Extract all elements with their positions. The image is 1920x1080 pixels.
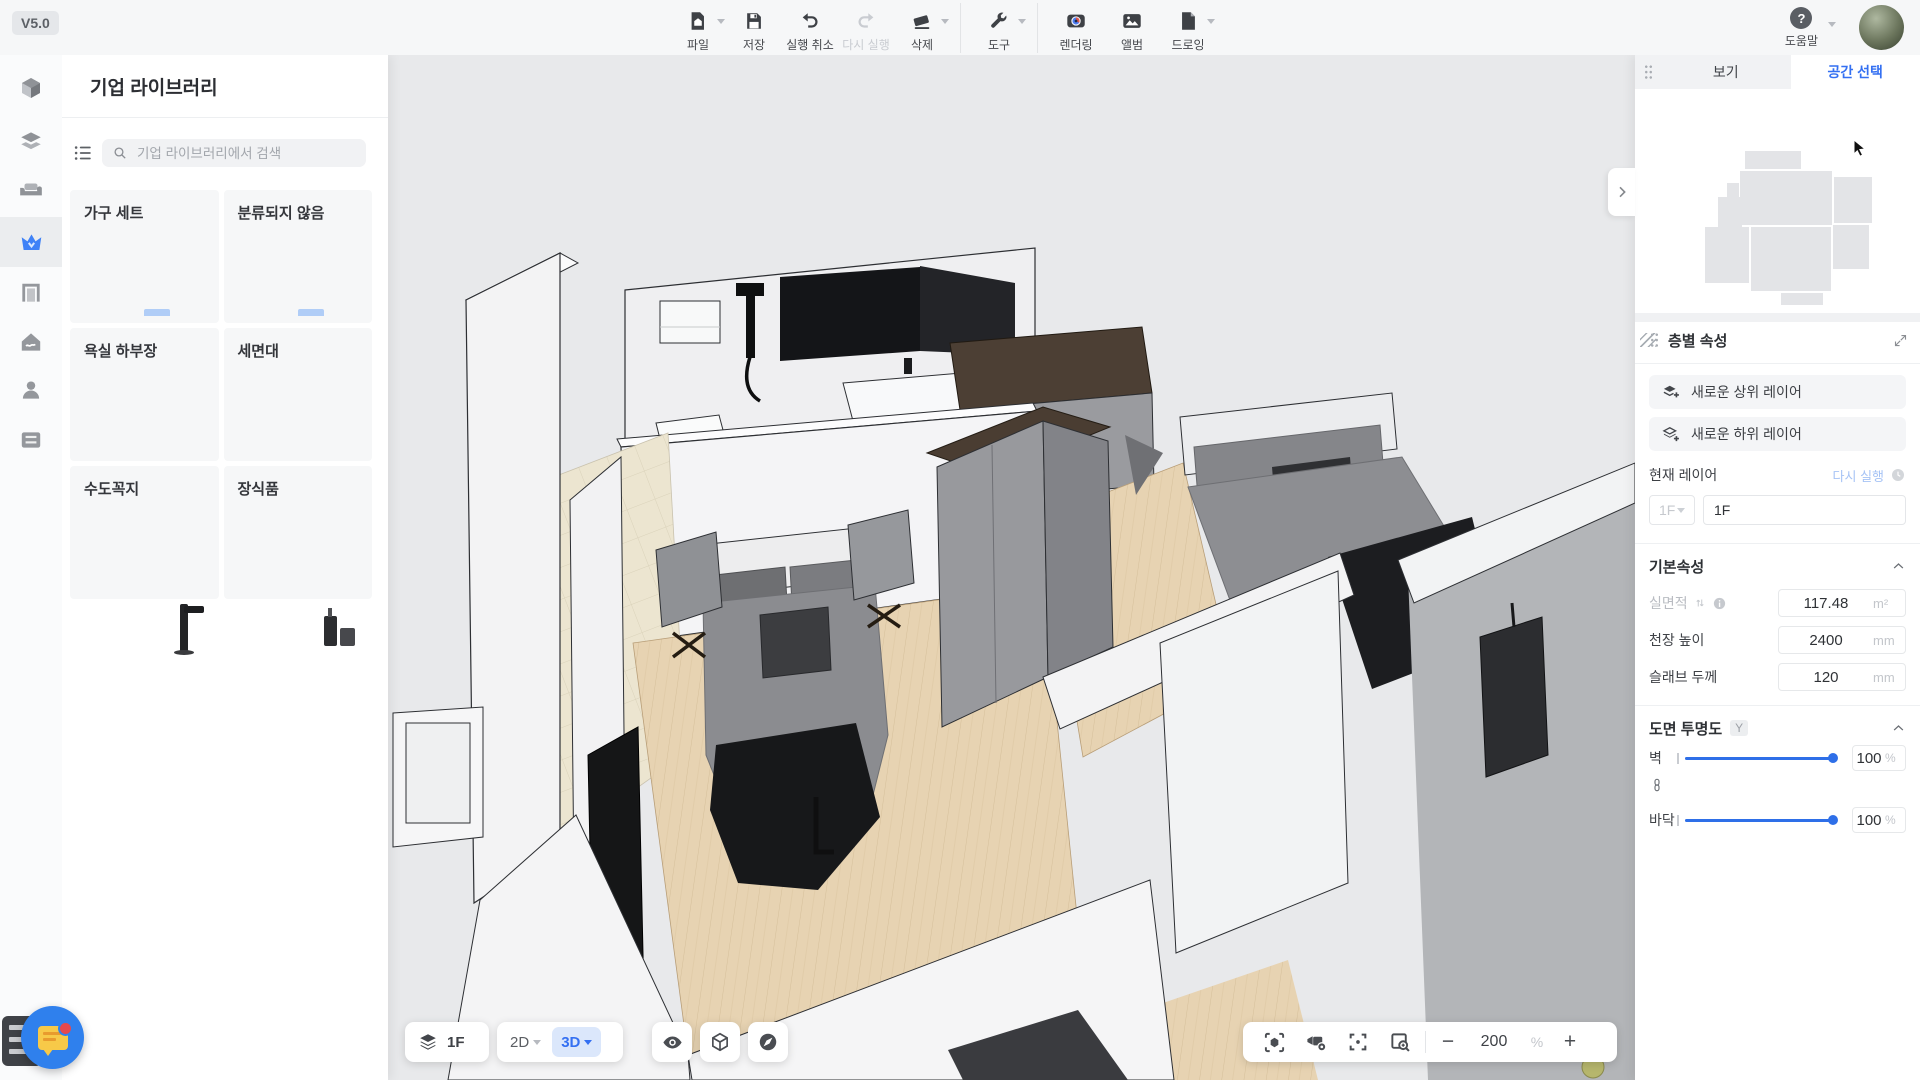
chevron-down-icon	[533, 1040, 541, 1045]
crown-icon	[18, 229, 45, 256]
camera-frame-icon	[1263, 1031, 1286, 1054]
category-grid: 가구 세트 분류되지 않음 욕실 하부장 세면대 수도꼭지 장식품	[70, 190, 372, 599]
ceiling-height-input[interactable]: 2400 mm	[1778, 626, 1906, 654]
area-value: 117.48	[1779, 595, 1873, 612]
tab-view[interactable]: 보기	[1661, 55, 1791, 89]
right-panel: 보기 공간 선택 층별 속성 새로운	[1635, 55, 1920, 1080]
zoom-area-button[interactable]	[1379, 1031, 1421, 1054]
save-label: 저장	[743, 36, 765, 53]
swap-icon[interactable]	[1693, 596, 1707, 610]
search-icon	[112, 145, 128, 161]
floorplan-minimap[interactable]	[1635, 89, 1920, 313]
sidebar-item-enterprise-library[interactable]	[0, 217, 62, 267]
zoom-out-button[interactable]: −	[1430, 1030, 1466, 1054]
drawer-icon	[18, 427, 44, 453]
area-label: 실면적	[1649, 593, 1688, 613]
sidebar-item-storage[interactable]	[0, 415, 62, 465]
divider	[1635, 705, 1920, 706]
new-upper-layer-label: 새로운 상위 레이어	[1691, 382, 1802, 402]
slab-thickness-label: 슬래브 두께	[1649, 667, 1717, 687]
floor-properties-title: 층별 속성	[1668, 330, 1727, 351]
mode-3d-label: 3D	[561, 1034, 580, 1051]
info-icon[interactable]	[1712, 596, 1727, 611]
compass-icon	[757, 1031, 779, 1053]
layer-add-up-icon	[1661, 382, 1681, 402]
chevron-right-icon	[1614, 184, 1630, 200]
category-card-faucet[interactable]: 수도꼭지	[70, 466, 219, 599]
drawing-button[interactable]: 드로잉	[1160, 3, 1216, 53]
floorplan-3d-scene	[388, 55, 1635, 1080]
chevron-down-icon	[717, 19, 725, 24]
sidebar-item-smart-home[interactable]	[0, 317, 62, 367]
category-name: 욕실 하부장	[84, 340, 157, 361]
library-panel: 기업 라이브러리 가구 세트 분류되지 않음 욕실 하부장 세면대 수도꼭지	[62, 55, 388, 1080]
zoom-toolbar: − 200 % +	[1243, 1022, 1617, 1062]
camera-settings-button[interactable]	[1295, 1031, 1337, 1054]
divider	[1425, 1031, 1426, 1053]
zoom-region-icon	[1389, 1031, 1412, 1054]
eraser-icon	[911, 10, 933, 32]
slab-thickness-unit: mm	[1873, 670, 1905, 685]
toolbar-group-tools: 도구	[960, 3, 1037, 53]
slab-thickness-value: 120	[1779, 669, 1873, 686]
render-label: 렌더링	[1059, 36, 1092, 53]
chevron-up-icon[interactable]	[1891, 721, 1906, 736]
basic-properties-header: 기본속성	[1649, 555, 1906, 577]
divider	[1635, 363, 1920, 364]
render-button[interactable]: 렌더링	[1048, 3, 1104, 53]
sidebar-item-account[interactable]	[0, 365, 62, 415]
divider	[1635, 313, 1920, 322]
house-icon	[18, 329, 44, 355]
category-card-decor[interactable]: 장식품	[224, 466, 373, 599]
cube-icon	[18, 75, 44, 101]
undo-label: 실행 취소	[786, 36, 834, 53]
file-label: 파일	[687, 36, 709, 53]
layers-icon	[417, 1031, 439, 1053]
chevron-up-icon[interactable]	[1891, 559, 1906, 574]
left-icon-rail	[0, 55, 62, 1080]
save-icon	[743, 10, 765, 32]
mode-3d-button[interactable]: 3D	[552, 1027, 601, 1057]
area-row: 실면적 117.48 m²	[1649, 589, 1906, 617]
wall-opacity-slider[interactable]	[1685, 757, 1833, 760]
main-toolbar: 파일 저장 실행 취소 다시 실행 삭제	[660, 3, 1226, 53]
help-label: 도움말	[1785, 32, 1818, 49]
ceiling-height-row: 천장 높이 2400 mm	[1649, 626, 1906, 654]
slider-thumb[interactable]	[1828, 815, 1838, 825]
drag-handle-icon[interactable]	[1635, 55, 1661, 89]
question-icon: ?	[1790, 7, 1812, 29]
wall-opacity-unit: %	[1885, 751, 1905, 765]
new-lower-layer-label: 새로운 하위 레이어	[1691, 424, 1802, 444]
layer-add-down-icon	[1661, 424, 1681, 444]
view-cube-button[interactable]	[700, 1022, 740, 1062]
album-label: 앨범	[1121, 36, 1143, 53]
wrench-icon	[988, 10, 1010, 32]
version-badge: V5.0	[12, 11, 59, 35]
zoom-unit: %	[1522, 1034, 1552, 1050]
right-panel-collapse-button[interactable]	[1608, 168, 1635, 216]
eye-icon	[661, 1031, 684, 1054]
mouse-cursor	[1853, 139, 1869, 159]
render-camera-icon	[1065, 10, 1087, 32]
slab-thickness-input[interactable]: 120 mm	[1778, 663, 1906, 691]
camera-view-button[interactable]	[1253, 1031, 1295, 1054]
transparency-header: 도면 투명도 Y	[1649, 717, 1906, 739]
save-button[interactable]: 저장	[726, 3, 782, 53]
floor-opacity-label: 바닥	[1649, 810, 1685, 830]
toolbar-group-file: 파일 저장 실행 취소 다시 실행 삭제	[660, 3, 960, 53]
notification-badge	[58, 1021, 73, 1036]
undo-button[interactable]: 실행 취소	[782, 3, 838, 53]
floor-opacity-input[interactable]: 100 %	[1852, 807, 1906, 833]
category-card-bath-vanity[interactable]: 욕실 하부장	[70, 328, 219, 461]
3d-viewport[interactable]	[388, 55, 1635, 1080]
sidebar-item-doors-windows[interactable]	[0, 268, 62, 318]
current-layer-label: 현재 레이어	[1649, 465, 1717, 485]
drawing-page-icon	[1177, 10, 1199, 32]
sidebar-item-furniture[interactable]	[0, 116, 62, 166]
file-button[interactable]: 파일	[670, 3, 726, 53]
sofa-icon	[18, 177, 44, 203]
area-unit: m²	[1873, 596, 1905, 611]
zoom-in-button[interactable]: +	[1552, 1030, 1588, 1054]
redo-link-label: 다시 실행	[1833, 466, 1884, 485]
chevron-down-icon	[1677, 508, 1685, 513]
shortcut-badge: Y	[1730, 720, 1748, 736]
floor-opacity-unit: %	[1885, 813, 1905, 827]
user-avatar[interactable]	[1859, 5, 1904, 50]
divider	[62, 117, 388, 118]
layer-name-input[interactable]	[1703, 495, 1906, 525]
category-card-furniture-set[interactable]: 가구 세트	[70, 190, 219, 323]
layer-select-dropdown[interactable]: 1F	[1649, 495, 1695, 525]
drawing-label: 드로잉	[1171, 36, 1204, 53]
category-name: 분류되지 않음	[238, 202, 325, 223]
category-card-washbasin[interactable]: 세면대	[224, 328, 373, 461]
basic-properties-title: 기본속성	[1649, 556, 1704, 577]
tools-label: 도구	[988, 36, 1010, 53]
sidebar-item-soft-furnishing[interactable]	[0, 165, 62, 215]
divider	[1635, 543, 1920, 544]
sidebar-item-construction[interactable]	[0, 63, 62, 113]
category-card-uncategorized[interactable]: 분류되지 않음	[224, 190, 373, 323]
mode-2d-label: 2D	[510, 1034, 529, 1051]
person-icon	[18, 377, 44, 403]
transparency-title: 도면 투명도	[1649, 718, 1722, 739]
area-label-group: 실면적	[1649, 593, 1727, 613]
layer-select-value: 1F	[1659, 502, 1675, 518]
chevron-down-icon	[1207, 19, 1215, 24]
category-name: 가구 세트	[84, 202, 143, 223]
library-panel-title: 기업 라이브러리	[90, 73, 218, 100]
view-mode-switch: 2D 3D	[497, 1022, 623, 1062]
redo-icon	[855, 10, 877, 32]
mode-2d-button[interactable]: 2D	[501, 1022, 550, 1062]
right-panel-tabs: 보기 공간 선택	[1635, 55, 1920, 89]
floor-properties-header: 층별 속성	[1635, 322, 1920, 358]
album-icon	[1121, 10, 1143, 32]
library-search-input[interactable]	[135, 145, 356, 162]
expand-icon[interactable]	[1893, 333, 1908, 348]
minimap-floorplan	[1635, 89, 1920, 313]
redo-button[interactable]: 다시 실행	[838, 3, 894, 53]
ceiling-height-value: 2400	[1779, 632, 1873, 649]
category-name: 장식품	[238, 478, 279, 499]
chevron-down-icon	[584, 1040, 592, 1045]
redo-label: 다시 실행	[842, 36, 890, 53]
redo-link[interactable]: 다시 실행	[1833, 466, 1906, 485]
library-search-box[interactable]	[102, 139, 366, 167]
chat-bubble-icon	[38, 1026, 68, 1050]
delete-button[interactable]: 삭제	[894, 3, 950, 53]
delete-label: 삭제	[911, 36, 933, 53]
visibility-button[interactable]	[652, 1022, 692, 1062]
history-clock-icon	[1890, 467, 1906, 483]
support-chat-button[interactable]	[21, 1006, 84, 1069]
zoom-level-value[interactable]: 200	[1466, 1033, 1522, 1051]
area-input[interactable]: 117.48 m²	[1778, 589, 1906, 617]
category-name: 세면대	[238, 340, 279, 361]
toolbar-group-output: 렌더링 앨범 드로잉	[1037, 3, 1226, 53]
tools-button[interactable]: 도구	[971, 3, 1027, 53]
tab-space-select[interactable]: 공간 선택	[1791, 55, 1920, 89]
wall-opacity-input[interactable]: 100 %	[1852, 745, 1906, 771]
file-home-icon	[687, 10, 709, 32]
focus-icon	[1347, 1031, 1369, 1053]
wall-opacity-row: 벽 100 %	[1649, 747, 1906, 769]
door-icon	[18, 280, 44, 306]
new-lower-layer-button[interactable]: 새로운 하위 레이어	[1649, 417, 1906, 451]
chevron-down-icon	[1018, 19, 1026, 24]
category-list-icon[interactable]	[72, 142, 94, 164]
top-toolbar: V5.0 파일 저장 실행 취소 다시 실행 삭제	[0, 0, 1920, 55]
chevron-down-icon	[1828, 22, 1836, 27]
wall-opacity-label: 벽	[1649, 748, 1685, 768]
album-button[interactable]: 앨범	[1104, 3, 1160, 53]
link-sliders-icon[interactable]	[1649, 777, 1665, 793]
floor-selector-label: 1F	[447, 1034, 465, 1051]
floor-opacity-row: 바닥 100 %	[1649, 809, 1906, 831]
ceiling-height-label: 천장 높이	[1649, 630, 1704, 650]
undo-icon	[799, 10, 821, 32]
ceiling-height-unit: mm	[1873, 633, 1905, 648]
slab-thickness-row: 슬래브 두께 120 mm	[1649, 663, 1906, 691]
camera-gear-icon	[1305, 1031, 1328, 1054]
drag-handle-icon[interactable]	[1647, 332, 1661, 348]
wall-opacity-value: 100	[1853, 750, 1885, 767]
floor-selector[interactable]: 1F	[405, 1022, 489, 1062]
help-button[interactable]: ? 도움말	[1785, 7, 1818, 49]
slider-thumb[interactable]	[1828, 753, 1838, 763]
new-upper-layer-button[interactable]: 새로운 상위 레이어	[1649, 375, 1906, 409]
compass-button[interactable]	[748, 1022, 788, 1062]
cube-3d-icon	[709, 1031, 731, 1053]
focus-center-button[interactable]	[1337, 1031, 1379, 1053]
floor-opacity-slider[interactable]	[1685, 819, 1833, 822]
slabs-icon	[18, 128, 44, 154]
category-name: 수도꼭지	[84, 478, 139, 499]
chevron-down-icon	[941, 19, 949, 24]
floor-opacity-value: 100	[1853, 812, 1885, 829]
